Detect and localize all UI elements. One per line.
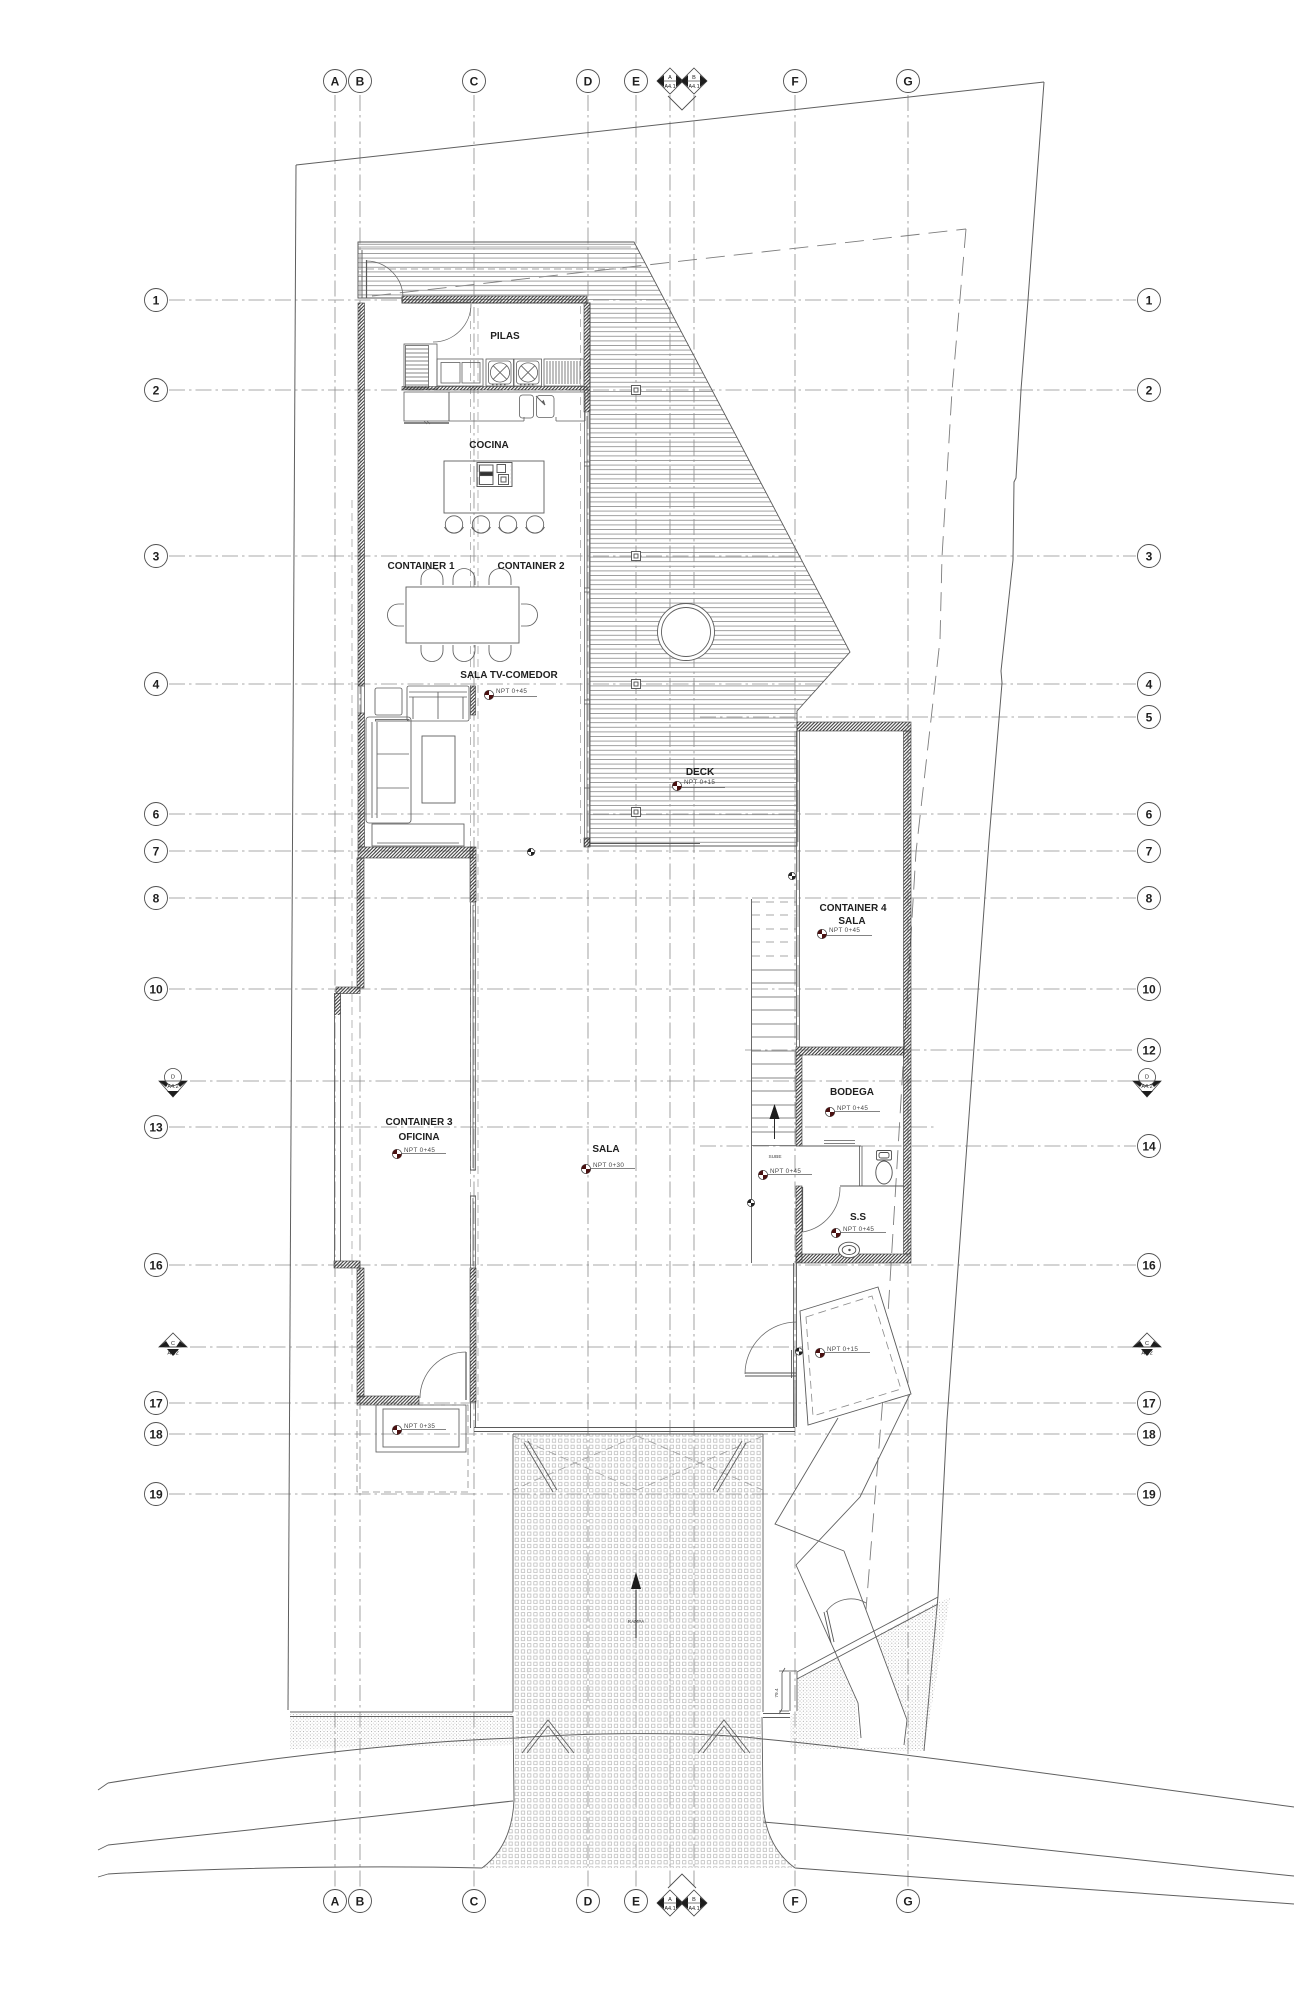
svg-text:2: 2 [1146, 384, 1153, 398]
svg-text:S.S: S.S [850, 1212, 866, 1223]
svg-text:NPT 0+45: NPT 0+45 [837, 1105, 868, 1112]
svg-text:BODEGA: BODEGA [830, 1087, 874, 1098]
svg-text:19: 19 [1142, 1488, 1156, 1502]
svg-text:A4.1: A4.1 [664, 84, 675, 90]
svg-text:5: 5 [1146, 711, 1153, 725]
svg-text:D: D [584, 75, 593, 89]
svg-text:8: 8 [1146, 892, 1153, 906]
svg-text:A4.1: A4.1 [664, 1906, 675, 1912]
svg-text:A: A [331, 75, 340, 89]
svg-text:3: 3 [1146, 550, 1153, 564]
svg-text:18: 18 [149, 1428, 163, 1442]
svg-text:14: 14 [1142, 1140, 1156, 1154]
svg-text:CONTAINER 1: CONTAINER 1 [387, 561, 454, 572]
svg-text:COCINA: COCINA [469, 440, 508, 451]
svg-text:8: 8 [153, 892, 160, 906]
svg-text:NPT 0+30: NPT 0+30 [593, 1162, 624, 1169]
svg-text:1: 1 [1146, 294, 1153, 308]
svg-text:1: 1 [153, 294, 160, 308]
svg-text:A: A [668, 1897, 672, 1903]
svg-text:B: B [692, 75, 696, 81]
svg-text:NPT 0+35: NPT 0+35 [404, 1423, 435, 1430]
svg-text:79.4: 79.4 [774, 1688, 780, 1698]
svg-text:CONTAINER 2: CONTAINER 2 [497, 561, 564, 572]
svg-text:SALA TV-COMEDOR: SALA TV-COMEDOR [460, 670, 558, 681]
svg-text:NPT 0+45: NPT 0+45 [404, 1147, 435, 1154]
svg-text:SALA: SALA [838, 916, 865, 927]
svg-text:C: C [470, 1895, 479, 1909]
svg-text:19: 19 [149, 1488, 163, 1502]
svg-text:NPT 0+45: NPT 0+45 [843, 1226, 874, 1233]
svg-text:A4.2: A4.2 [1141, 1084, 1152, 1090]
svg-text:RAMPA: RAMPA [628, 1619, 646, 1625]
svg-text:PILAS: PILAS [490, 331, 520, 342]
svg-text:CONTAINER 3: CONTAINER 3 [385, 1117, 452, 1128]
svg-text:NPT 0+15: NPT 0+15 [684, 779, 715, 786]
svg-text:B: B [356, 75, 365, 89]
svg-text:NPT 0+45: NPT 0+45 [496, 688, 527, 695]
svg-text:17: 17 [149, 1397, 163, 1411]
svg-text:E: E [632, 75, 640, 89]
svg-text:C: C [171, 1341, 175, 1347]
svg-text:DECK: DECK [686, 767, 715, 778]
svg-text:A: A [331, 1895, 340, 1909]
svg-text:B: B [692, 1897, 696, 1903]
svg-text:A4.2: A4.2 [167, 1084, 178, 1090]
svg-text:3: 3 [153, 550, 160, 564]
svg-text:6: 6 [1146, 808, 1153, 822]
svg-text:D: D [1145, 1075, 1149, 1081]
svg-text:A4.1: A4.1 [688, 84, 699, 90]
svg-text:17: 17 [1142, 1397, 1156, 1411]
svg-text:6: 6 [153, 808, 160, 822]
svg-text:10: 10 [1142, 983, 1156, 997]
svg-text:SUBE: SUBE [768, 1154, 781, 1160]
svg-text:CONTAINER 4: CONTAINER 4 [819, 903, 886, 914]
svg-text:2: 2 [153, 384, 160, 398]
svg-text:7: 7 [1146, 845, 1153, 859]
svg-text:C: C [470, 75, 479, 89]
svg-text:NPT 0+45: NPT 0+45 [829, 927, 860, 934]
svg-text:A4.1: A4.1 [688, 1906, 699, 1912]
svg-text:18: 18 [1142, 1428, 1156, 1442]
svg-text:G: G [903, 1895, 912, 1909]
svg-text:G: G [903, 75, 912, 89]
svg-text:OFICINA: OFICINA [398, 1132, 439, 1143]
svg-text:4: 4 [153, 678, 160, 692]
svg-text:7: 7 [153, 845, 160, 859]
svg-text:4: 4 [1146, 678, 1153, 692]
svg-text:F: F [791, 75, 798, 89]
svg-text:F: F [791, 1895, 798, 1909]
svg-text:12: 12 [1142, 1044, 1156, 1058]
svg-text:A: A [668, 75, 672, 81]
svg-text:16: 16 [1142, 1259, 1156, 1273]
svg-text:NPT 0+45: NPT 0+45 [770, 1168, 801, 1175]
svg-text:C: C [1145, 1341, 1149, 1347]
svg-text:B: B [356, 1895, 365, 1909]
svg-text:D: D [171, 1075, 175, 1081]
svg-text:10: 10 [149, 983, 163, 997]
svg-text:SALA: SALA [592, 1144, 619, 1155]
svg-text:NPT 0+15: NPT 0+15 [827, 1346, 858, 1353]
svg-text:E: E [632, 1895, 640, 1909]
svg-text:13: 13 [149, 1121, 163, 1135]
svg-text:D: D [584, 1895, 593, 1909]
svg-text:16: 16 [149, 1259, 163, 1273]
